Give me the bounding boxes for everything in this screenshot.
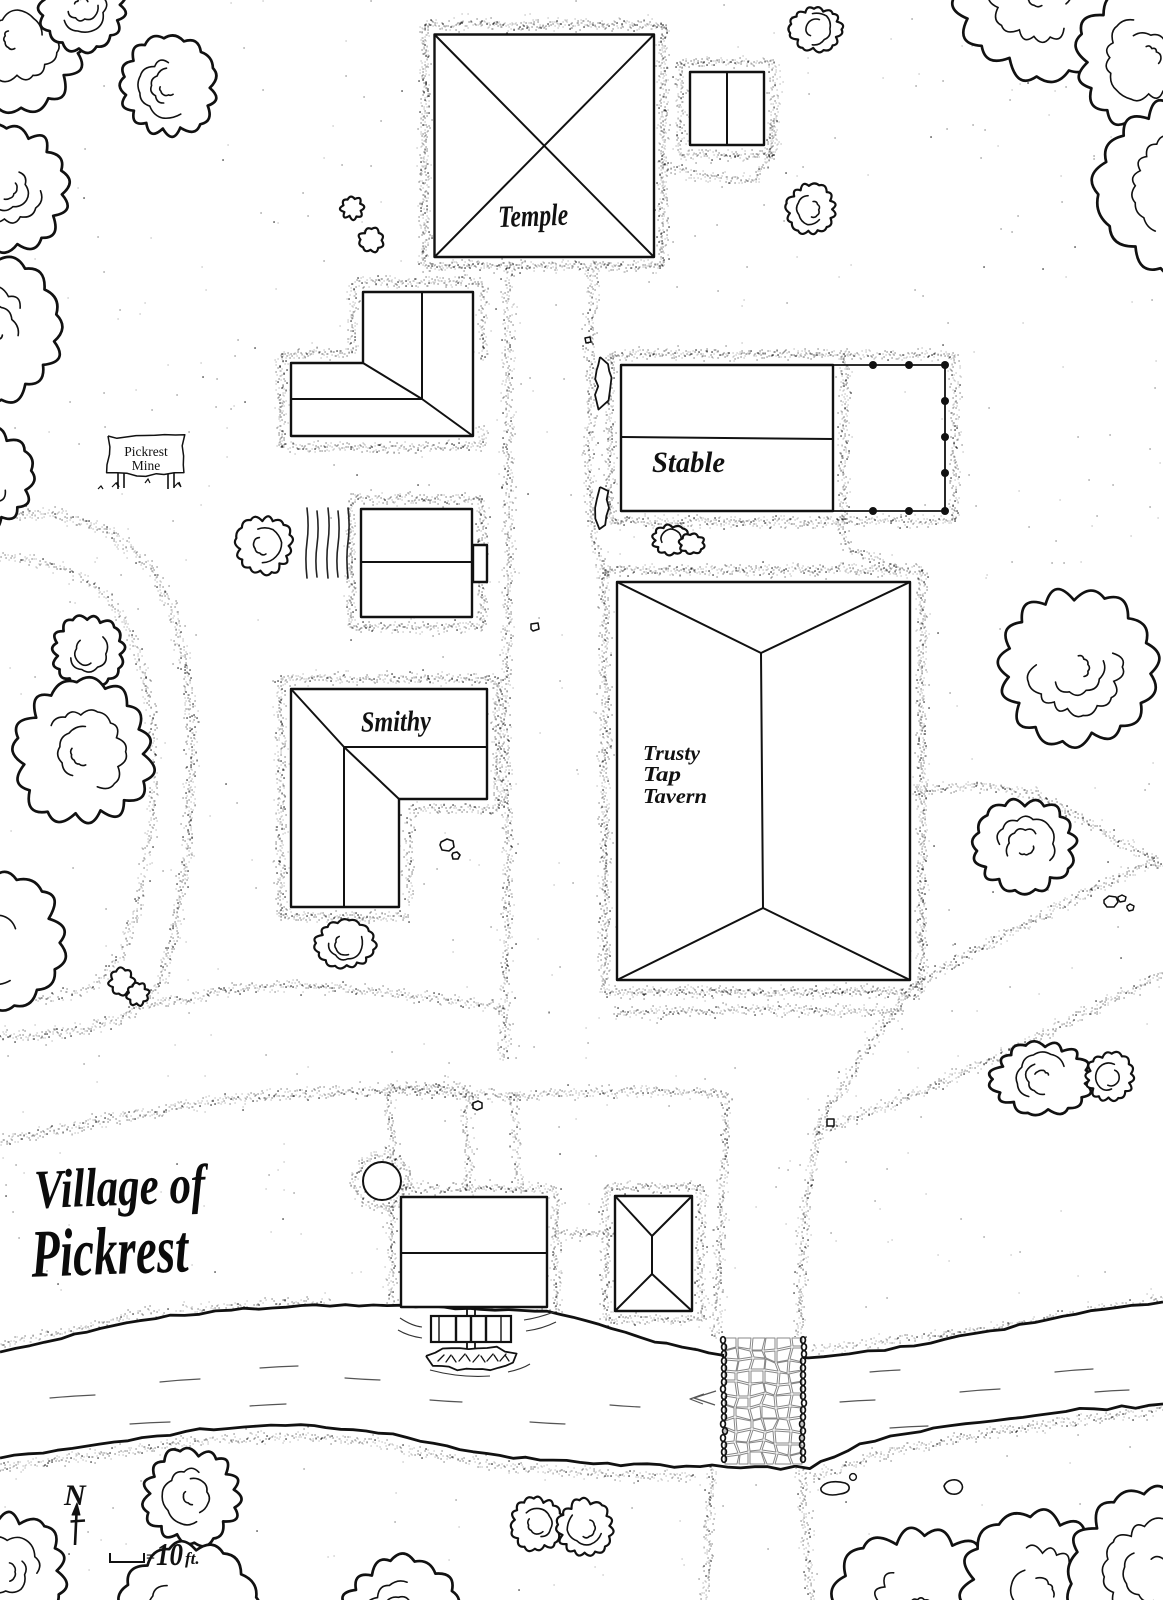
svg-text:Stable: Stable	[652, 446, 725, 479]
svg-text:Mine: Mine	[132, 458, 161, 473]
svg-text:Tap: Tap	[643, 762, 681, 786]
svg-text:ft.: ft.	[185, 1549, 200, 1568]
svg-text:10: 10	[156, 1536, 183, 1572]
svg-text:Smithy: Smithy	[361, 705, 432, 738]
svg-text:Pickrest: Pickrest	[124, 444, 168, 459]
svg-text:Tavern: Tavern	[643, 784, 707, 808]
svg-text:=: =	[146, 1549, 155, 1566]
svg-text:Temple: Temple	[498, 197, 569, 234]
svg-text:Pickrest: Pickrest	[29, 1210, 191, 1292]
